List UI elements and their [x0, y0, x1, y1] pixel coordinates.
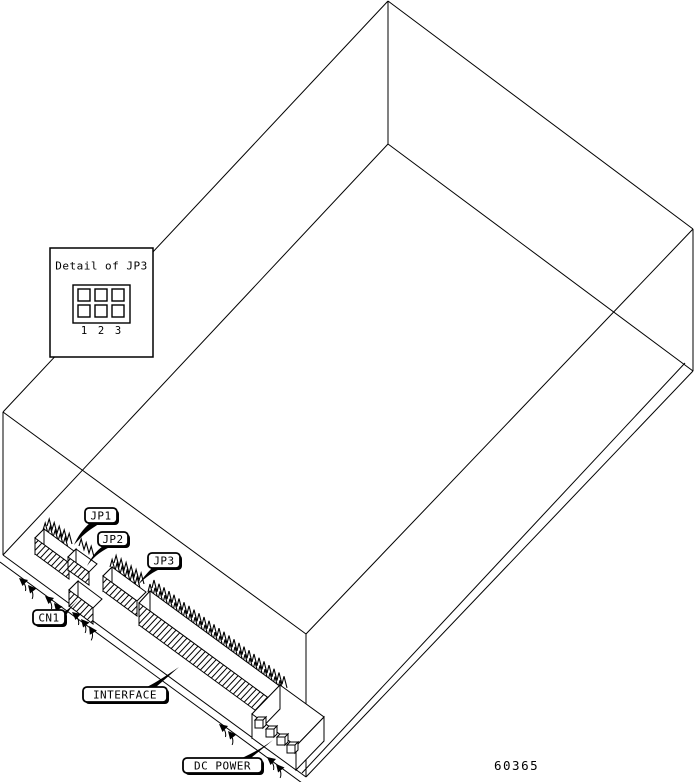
- callout-interface: INTERFACE: [83, 667, 179, 704]
- jumper-pin-1: 1: [81, 325, 87, 337]
- jp2-label: JP2: [102, 533, 123, 546]
- drive-isometric-diagram: JP1 JP2 JP3 CN1 INTERFACE DC POWER D: [0, 0, 696, 782]
- detail-inset-box: Detail of JP3 1 2 3: [50, 248, 153, 357]
- pcb-edge-lines: [0, 363, 685, 782]
- jp3-label: JP3: [153, 555, 174, 568]
- dc-power-label: DC POWER: [194, 760, 251, 773]
- enclosure-wireframe: [3, 1, 693, 777]
- detail-inset-title: Detail of JP3: [55, 260, 148, 273]
- cn1-connector: [69, 581, 102, 624]
- jumper-pin-3: 3: [115, 325, 121, 337]
- jp1-label: JP1: [90, 510, 111, 523]
- cn1-label: CN1: [38, 612, 59, 625]
- jumper-pin-2: 2: [98, 325, 104, 337]
- figure-number: 60365: [494, 758, 539, 773]
- figure-canvas: JP1 JP2 JP3 CN1 INTERFACE DC POWER D: [0, 0, 696, 782]
- interface-label: INTERFACE: [93, 689, 157, 702]
- jp2-connector: [68, 539, 97, 585]
- callout-dc-power: DC POWER: [183, 740, 273, 775]
